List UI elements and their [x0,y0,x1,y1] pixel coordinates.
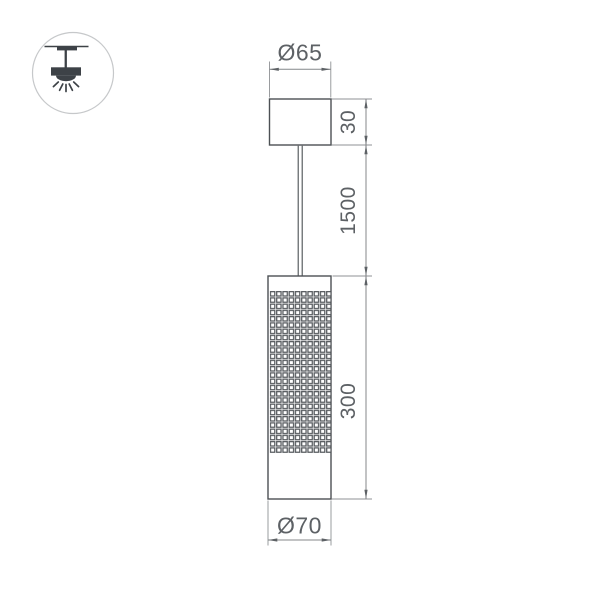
lamp-shade [51,67,81,75]
arrow-down-icon [364,490,367,499]
arrow-down-icon [364,267,367,276]
canopy [270,99,332,145]
dimension-label-body-height: 300 [337,383,360,420]
pendant-ceiling-light-icon [33,33,114,114]
arrow-down-icon [364,136,367,145]
dimension-suspension-length: 1500 [333,145,373,276]
arrow-up-icon [364,145,367,154]
perforated-mesh-texture [270,291,331,454]
arrow-left-icon [268,538,277,541]
dimension-label-canopy-height: 30 [337,110,360,134]
dimension-body-diameter: Ø70 [268,501,331,546]
technical-drawing-canvas: Ø65 30 1500 300 [0,0,600,600]
arrow-right-icon [322,538,331,541]
canopy-plate [57,47,77,50]
dimension-canopy-height: 30 [332,99,373,145]
dimension-label-canopy-diameter: Ø65 [278,40,323,66]
dimension-canopy-diameter: Ø65 [270,40,331,98]
fixture-drawing [268,99,331,499]
dimension-body-height: 300 [332,276,373,499]
arrow-up-icon [364,276,367,285]
dimension-label-suspension-length: 1500 [337,186,360,235]
arrow-left-icon [270,68,279,71]
arrow-up-icon [364,99,367,108]
stem [65,50,67,68]
pendant-lamp-drawing: Ø65 30 1500 300 [0,0,600,600]
dimension-label-body-diameter: Ø70 [277,513,322,539]
arrow-right-icon [322,68,331,71]
